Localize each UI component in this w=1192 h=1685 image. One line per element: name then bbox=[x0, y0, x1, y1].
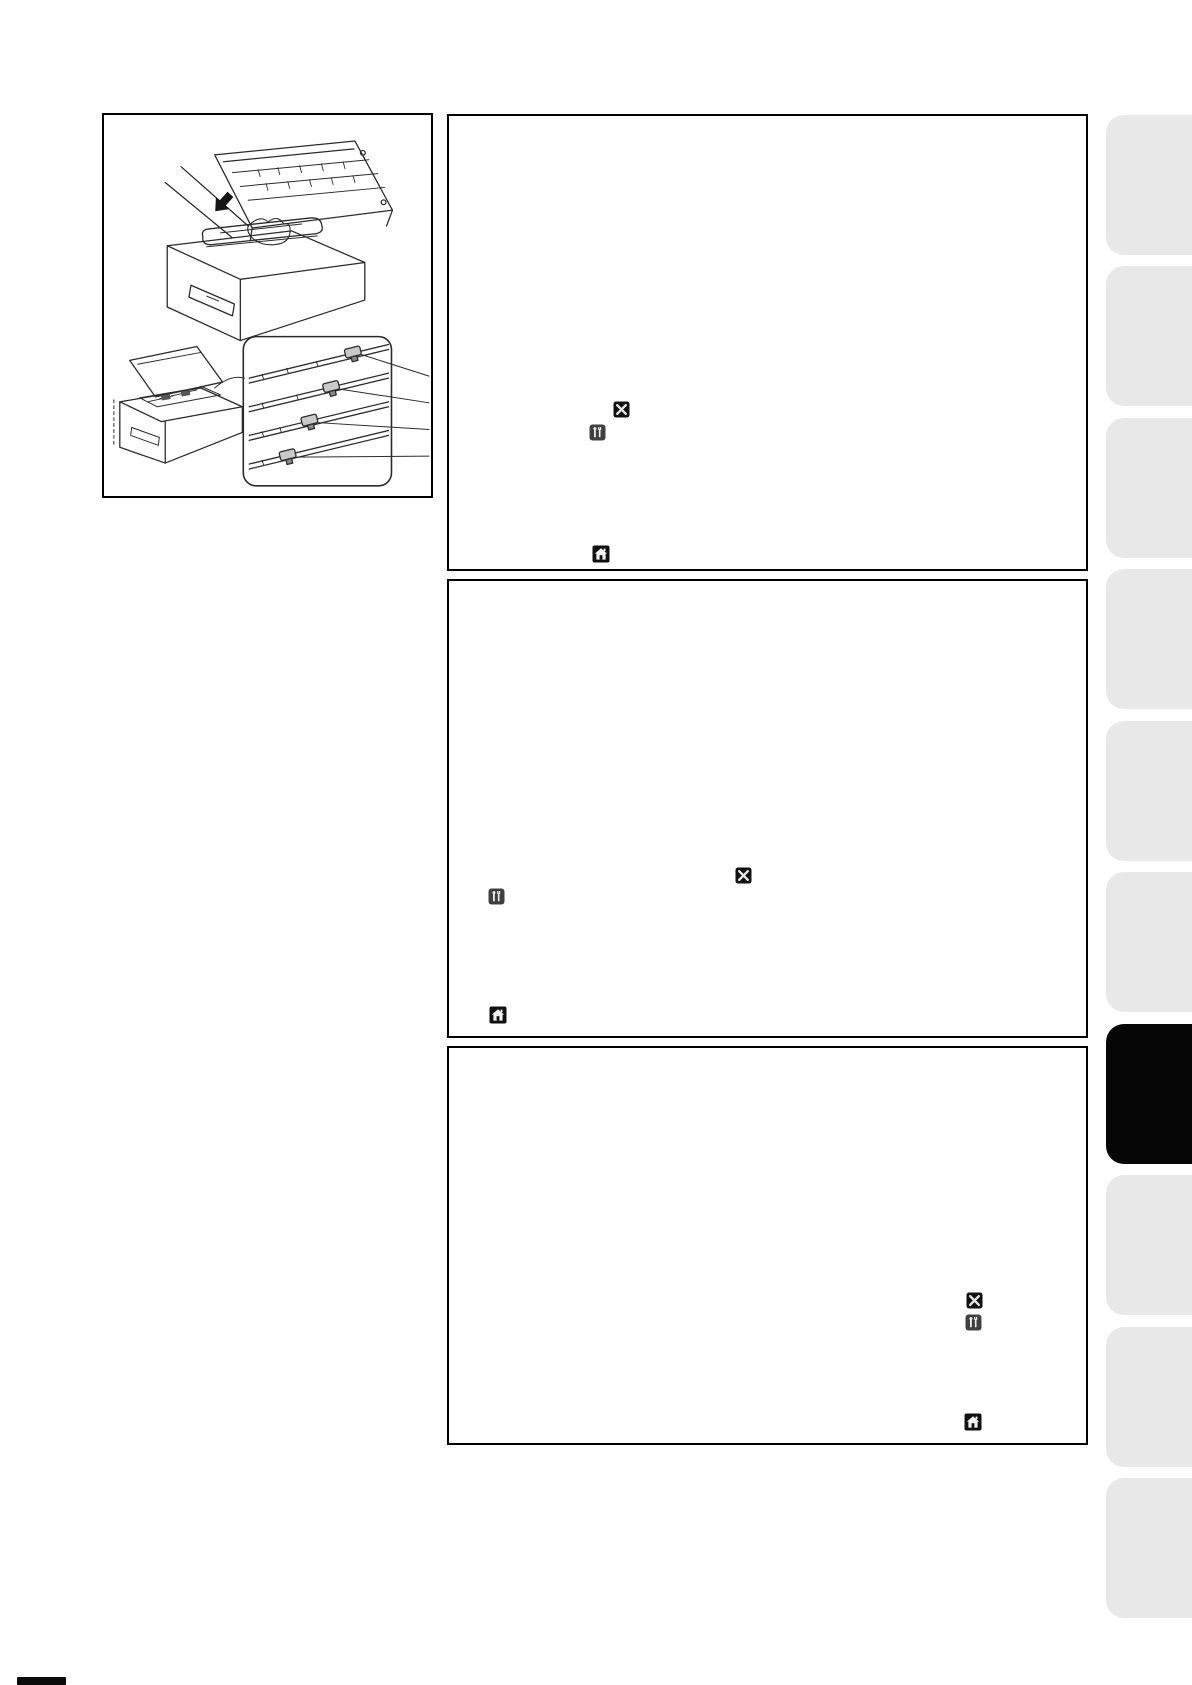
chapter-tab-9[interactable] bbox=[1106, 1327, 1192, 1467]
cancel-x-icon bbox=[613, 401, 630, 418]
chapter-tab-1[interactable] bbox=[1106, 115, 1192, 255]
settings-tools-icon bbox=[589, 424, 606, 441]
chapter-tab-rail bbox=[1106, 0, 1192, 1685]
cancel-x-icon bbox=[966, 1292, 983, 1309]
chapter-tab-5[interactable] bbox=[1106, 721, 1192, 861]
instruction-box-3 bbox=[447, 1046, 1088, 1445]
corona-slider bbox=[344, 346, 363, 363]
corona-slider bbox=[301, 414, 320, 431]
corona-wire-callout bbox=[243, 337, 429, 486]
cancel-x-icon bbox=[735, 867, 752, 884]
instruction-box-1 bbox=[447, 114, 1088, 571]
chapter-tab-10[interactable] bbox=[1106, 1478, 1192, 1618]
chapter-tab-8[interactable] bbox=[1106, 1175, 1192, 1315]
small-printer-figure bbox=[114, 346, 244, 463]
chapter-tab-7[interactable] bbox=[1106, 1024, 1192, 1164]
chapter-tab-4[interactable] bbox=[1106, 569, 1192, 709]
instruction-box-2 bbox=[447, 579, 1088, 1038]
page-footer-mark bbox=[17, 1677, 66, 1685]
chapter-tab-2[interactable] bbox=[1106, 266, 1192, 406]
printer-open-cover-figure bbox=[165, 141, 392, 341]
settings-tools-icon bbox=[488, 888, 505, 905]
settings-tools-icon bbox=[965, 1314, 982, 1331]
chapter-tab-3[interactable] bbox=[1106, 418, 1192, 558]
home-icon bbox=[489, 1006, 507, 1024]
figure-box bbox=[102, 113, 433, 498]
corona-slider bbox=[279, 448, 298, 465]
home-icon bbox=[964, 1413, 982, 1431]
chapter-tab-6[interactable] bbox=[1106, 872, 1192, 1012]
corona-slider bbox=[322, 380, 341, 397]
printer-illustration bbox=[104, 115, 431, 496]
home-icon bbox=[592, 545, 610, 563]
